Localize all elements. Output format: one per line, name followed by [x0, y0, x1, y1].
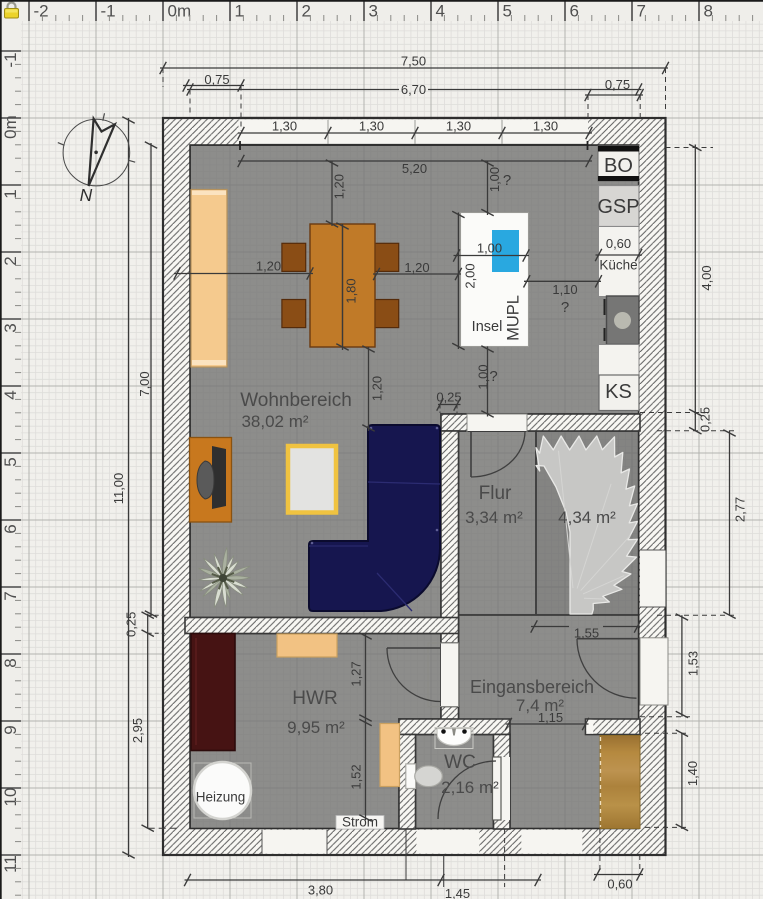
svg-text:0,75: 0,75	[605, 77, 630, 92]
svg-text:0,25: 0,25	[436, 390, 461, 405]
svg-text:1,45: 1,45	[445, 886, 470, 899]
svg-text:4,34 m²: 4,34 m²	[558, 508, 616, 527]
svg-text:1,40: 1,40	[685, 761, 700, 786]
svg-text:-1: -1	[1, 52, 20, 67]
svg-text:1,20: 1,20	[332, 174, 347, 199]
svg-text:Wohnbereich: Wohnbereich	[240, 390, 352, 411]
svg-text:1,52: 1,52	[349, 764, 364, 789]
svg-text:?: ?	[561, 299, 569, 316]
svg-text:Strom: Strom	[342, 815, 378, 830]
svg-text:0m: 0m	[168, 2, 192, 21]
svg-text:10: 10	[1, 788, 20, 807]
svg-text:?: ?	[489, 368, 497, 385]
svg-text:KS: KS	[605, 381, 632, 403]
svg-text:1,30: 1,30	[359, 119, 384, 134]
svg-text:BO: BO	[604, 155, 633, 177]
svg-text:2,77: 2,77	[733, 497, 748, 522]
svg-text:0,25: 0,25	[124, 612, 139, 637]
svg-text:7,4 m²: 7,4 m²	[516, 696, 565, 715]
svg-text:-1: -1	[101, 2, 116, 21]
svg-text:5: 5	[1, 457, 20, 466]
svg-text:MUPL: MUPL	[505, 295, 523, 341]
svg-text:2: 2	[302, 2, 311, 21]
svg-text:?: ?	[503, 172, 511, 189]
svg-text:Heizung: Heizung	[196, 790, 246, 805]
svg-text:3: 3	[369, 2, 378, 21]
svg-text:0,25: 0,25	[698, 407, 713, 432]
svg-text:9,95 m²: 9,95 m²	[287, 718, 345, 737]
svg-text:11,00: 11,00	[111, 473, 126, 505]
svg-text:1,00: 1,00	[487, 167, 502, 192]
svg-text:1,20: 1,20	[256, 259, 281, 274]
svg-text:6: 6	[570, 2, 579, 21]
svg-text:WC: WC	[444, 752, 476, 773]
svg-text:9: 9	[1, 725, 20, 734]
svg-text:HWR: HWR	[292, 688, 337, 709]
svg-text:11: 11	[1, 855, 20, 873]
svg-text:6: 6	[1, 524, 20, 533]
svg-text:Insel: Insel	[472, 319, 503, 335]
svg-text:N: N	[80, 185, 93, 205]
svg-text:-2: -2	[34, 2, 49, 21]
svg-text:8: 8	[1, 658, 20, 667]
svg-text:6,70: 6,70	[401, 82, 426, 97]
svg-text:3,34 m²: 3,34 m²	[465, 508, 523, 527]
svg-text:1: 1	[235, 2, 244, 21]
svg-text:4,00: 4,00	[699, 265, 714, 290]
svg-text:4: 4	[436, 2, 445, 21]
svg-text:0m: 0m	[1, 115, 20, 139]
svg-text:2,00: 2,00	[463, 263, 478, 288]
svg-text:1,55: 1,55	[574, 626, 599, 641]
svg-text:4: 4	[1, 390, 20, 399]
svg-text:1,30: 1,30	[446, 119, 471, 134]
svg-text:1,00: 1,00	[475, 364, 490, 389]
svg-text:0,60: 0,60	[607, 877, 632, 892]
svg-text:8: 8	[704, 2, 713, 21]
svg-text:Eingansbereich: Eingansbereich	[470, 677, 594, 697]
svg-text:5,20: 5,20	[402, 161, 427, 176]
svg-text:1,27: 1,27	[349, 661, 364, 686]
svg-text:2: 2	[1, 256, 20, 265]
svg-text:Küche: Küche	[599, 258, 637, 273]
svg-text:7,00: 7,00	[137, 371, 152, 396]
svg-text:1,80: 1,80	[344, 278, 359, 303]
svg-text:2,95: 2,95	[130, 718, 145, 743]
svg-text:3: 3	[1, 323, 20, 332]
svg-text:3,80: 3,80	[308, 883, 333, 898]
svg-text:0,75: 0,75	[204, 72, 229, 87]
svg-text:1,20: 1,20	[404, 260, 429, 275]
svg-text:1,10: 1,10	[552, 282, 577, 297]
svg-text:38,02 m²: 38,02 m²	[241, 412, 308, 431]
svg-text:7,50: 7,50	[401, 54, 426, 69]
svg-text:7: 7	[637, 2, 646, 21]
svg-text:0,60: 0,60	[606, 236, 631, 251]
svg-text:1,30: 1,30	[272, 119, 297, 134]
svg-text:1,20: 1,20	[370, 376, 385, 401]
svg-text:1,00: 1,00	[477, 241, 502, 256]
svg-text:GSP: GSP	[597, 196, 639, 218]
svg-text:7: 7	[1, 591, 20, 600]
svg-text:1,30: 1,30	[533, 119, 558, 134]
svg-text:1: 1	[1, 189, 20, 198]
svg-text:1,53: 1,53	[686, 651, 701, 676]
svg-text:2,16 m²: 2,16 m²	[441, 778, 499, 797]
svg-text:Flur: Flur	[479, 483, 512, 504]
svg-text:5: 5	[503, 2, 512, 21]
